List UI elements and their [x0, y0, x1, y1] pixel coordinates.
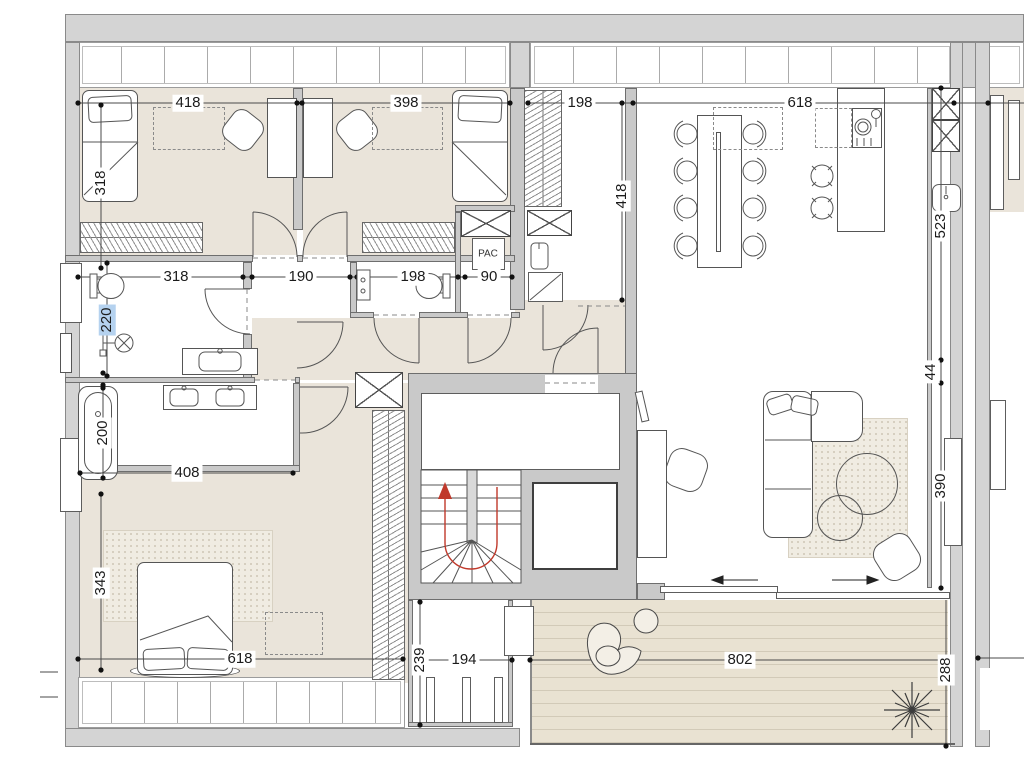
patio-grate-2	[462, 677, 471, 723]
window-right-kitchen	[932, 184, 961, 212]
shaft-dressing	[355, 372, 403, 408]
wall-bath1-right-a	[243, 262, 252, 289]
wall-bedrooms-south-a	[65, 255, 253, 262]
dining-table-runner	[716, 132, 721, 252]
storage-room	[532, 482, 618, 570]
sliding-door-panel-2	[776, 592, 950, 599]
coffee-table-small	[817, 495, 863, 541]
terrace-floor	[532, 600, 948, 744]
window-band-top-left	[78, 42, 510, 88]
bed-1-pillow	[87, 95, 132, 123]
window-band-bottom	[78, 677, 405, 728]
wall-wc-south-b	[419, 312, 468, 318]
dim-318-left: 318	[93, 167, 110, 198]
window-left-shower	[60, 263, 82, 323]
dim-190-corridor: 190	[285, 269, 316, 286]
kitchen-sink-unit	[852, 108, 882, 148]
bed-3-pillow-right	[186, 647, 229, 671]
toilet-shower-room	[90, 274, 124, 299]
neighbor-opening	[980, 668, 1012, 730]
wall-bath1-bath2-a	[65, 377, 255, 383]
wall-bedroom2-entry	[510, 88, 525, 310]
dim-200-bathtub: 200	[95, 417, 112, 448]
pac-label: PAC	[478, 249, 498, 260]
dim-618-kitchen: 618	[784, 95, 815, 112]
entry-door-opening	[545, 375, 598, 393]
dim-802-terrace: 802	[724, 652, 755, 669]
wall-entry-dining	[625, 88, 637, 393]
kitchen-stools	[811, 165, 833, 219]
wardrobe-bedroom-1	[80, 222, 203, 253]
sliding-door-arrows	[712, 576, 878, 584]
desk-2	[303, 98, 333, 178]
neighbor-furniture-2	[1008, 100, 1020, 180]
floor-plan-canvas: 418 398 198 618 318 318 190 198 90 220 2…	[0, 0, 1024, 768]
dining-dashed-cabinet	[713, 107, 783, 150]
dim-408-bathroom2: 408	[171, 465, 202, 482]
bed-3-pillow-left	[142, 647, 185, 671]
shaft-pac	[461, 210, 511, 237]
bedroom-3-dashed-zone	[265, 612, 323, 655]
sofa-chaise	[811, 391, 863, 442]
shaft-kitchen-1	[932, 88, 960, 120]
kitchen-dashed-cabinet	[815, 108, 852, 148]
dim-44-right: 44	[923, 361, 940, 384]
dim-618-bedroom3: 618	[224, 651, 255, 668]
dim-239-patio: 239	[412, 644, 429, 675]
neighbor-party-wall	[975, 42, 990, 747]
tv-sideboard	[637, 430, 667, 558]
hallway-floor	[252, 318, 625, 380]
neighbor-furniture-3	[990, 400, 1006, 490]
dim-220-shower-highlighted: 220	[99, 304, 116, 335]
dim-194-patio: 194	[448, 652, 479, 669]
dim-343-bedroom3: 343	[93, 567, 110, 598]
dim-418-bedroom1: 418	[172, 95, 203, 112]
dim-318-bath: 318	[160, 269, 191, 286]
wall-wc-south-c	[511, 312, 520, 318]
bed-2-pillow	[457, 95, 502, 123]
patio-grate-1	[426, 677, 435, 723]
patio-grate-3	[494, 677, 503, 723]
desk-1	[267, 98, 297, 178]
wc-hand-basin	[357, 270, 370, 300]
wall-corridor-wc	[350, 262, 357, 318]
patio-window	[504, 606, 534, 656]
neighbor-furniture-1	[990, 95, 1004, 210]
shaft-kitchen-2	[932, 120, 960, 152]
dim-398-bedroom2: 398	[390, 95, 421, 112]
dim-288-terrace: 288	[938, 654, 955, 685]
wall-wc-south-a	[350, 312, 374, 318]
exterior-wall-bottom	[65, 728, 520, 747]
stair-landing	[421, 393, 620, 470]
vestibule-floor	[515, 300, 625, 320]
towel-radiator	[60, 333, 72, 373]
dim-198-entry: 198	[564, 95, 595, 112]
dim-90-pac: 90	[478, 269, 501, 286]
wardrobe-bedroom-2	[362, 222, 455, 253]
vanity-double	[163, 385, 257, 410]
armchair-left	[660, 444, 711, 495]
wardrobe-dressing	[372, 410, 405, 680]
wardrobe-entry	[524, 90, 562, 207]
bedroom-2-dashed-zone	[372, 107, 443, 150]
terrace-edge-bottom	[530, 743, 955, 745]
window-band-top-right	[530, 42, 954, 88]
dim-198-wc: 198	[397, 269, 428, 286]
shaft-entry	[527, 210, 572, 236]
dim-390-living: 390	[933, 470, 950, 501]
bedroom-1-dashed-zone	[153, 107, 225, 150]
wall-bath2-right	[293, 383, 300, 472]
exterior-wall-top	[65, 14, 1024, 42]
dim-418-entry-hall: 418	[614, 180, 631, 211]
wall-bedrooms-south-b	[297, 255, 303, 262]
sliding-door-panel-1	[660, 586, 778, 593]
entry-bench	[528, 272, 563, 302]
wall-kitchen-strip	[927, 88, 932, 588]
dim-523-right: 523	[933, 210, 950, 241]
wall-pier-top	[510, 42, 530, 88]
vanity-shower-room	[182, 348, 258, 375]
